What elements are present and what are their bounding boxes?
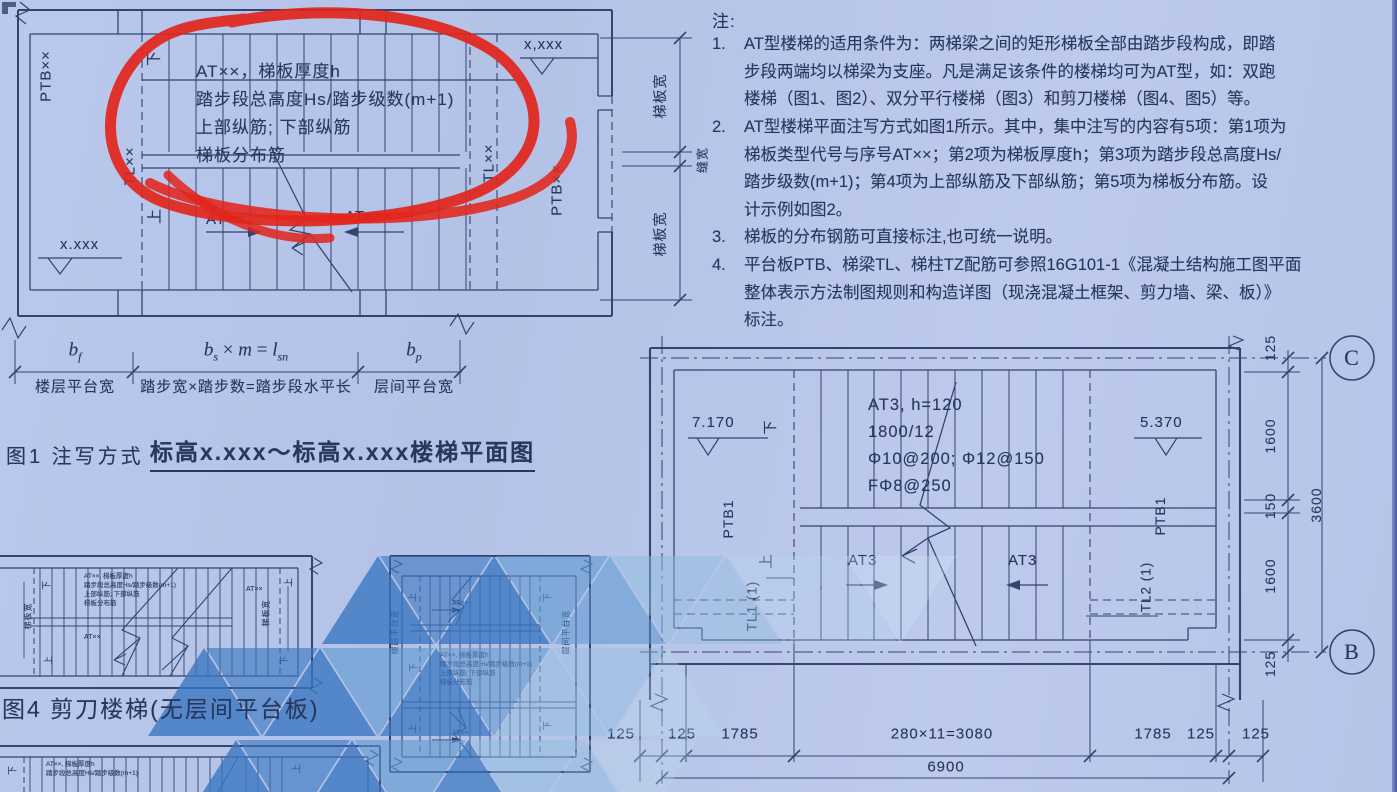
scan-edge-strip	[1392, 0, 1397, 792]
scanned-standard-page: PTB×× 下 TL×× TL×× PTB×× 上 AT××，梯板厚度h 踏步段…	[0, 0, 1397, 792]
red-marker-strokes	[110, 13, 571, 239]
red-marker-annotation	[0, 0, 1397, 792]
